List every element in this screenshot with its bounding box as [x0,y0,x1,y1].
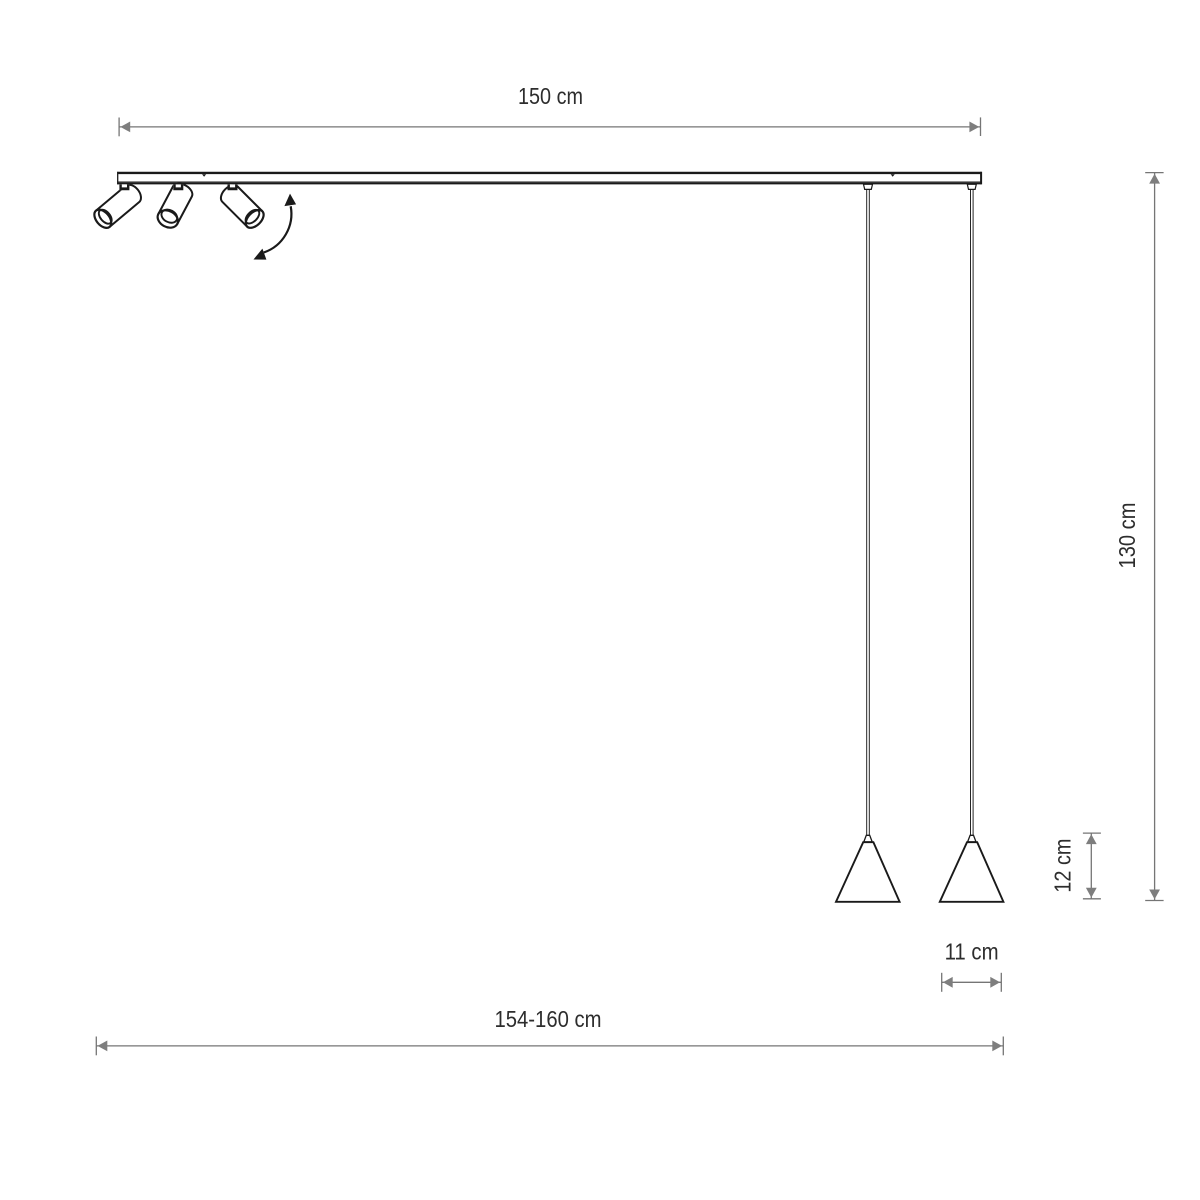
svg-text:130 cm: 130 cm [1114,503,1140,569]
svg-text:150 cm: 150 cm [518,83,583,109]
svg-text:154-160 cm: 154-160 cm [495,1006,602,1032]
svg-text:12 cm: 12 cm [1050,839,1076,893]
svg-text:11 cm: 11 cm [945,938,999,964]
